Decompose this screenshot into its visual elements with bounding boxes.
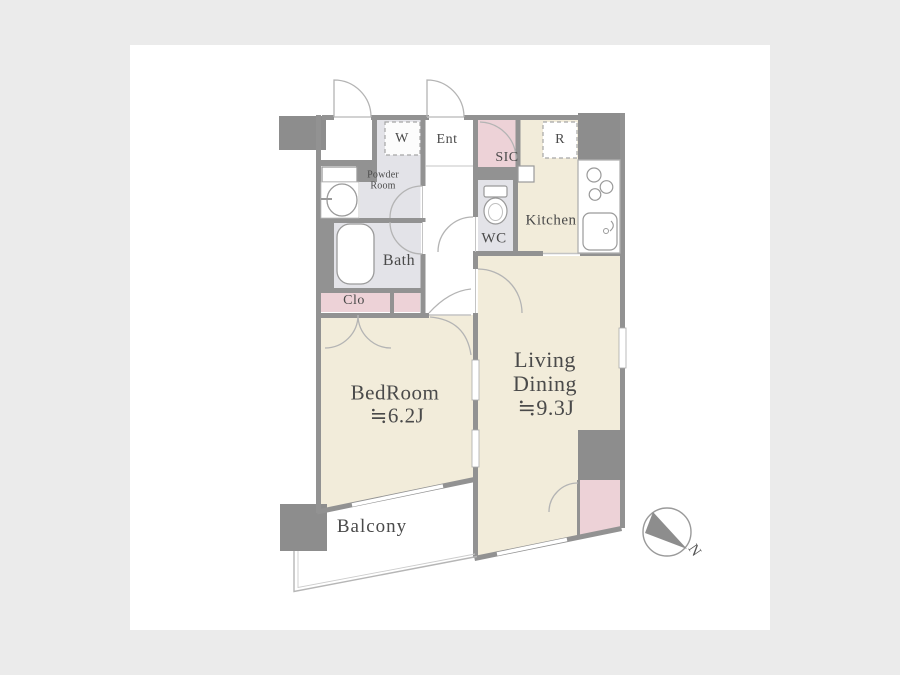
ld-side-window (619, 328, 626, 368)
compass (643, 508, 691, 556)
alcove-floor (321, 118, 372, 162)
niche-box (518, 166, 534, 182)
floorplan-drawing (0, 0, 900, 675)
closet2-floor (394, 290, 420, 312)
bathtub-icon (337, 224, 374, 284)
entrance-door-arc (427, 80, 464, 117)
sic-floor (473, 117, 518, 168)
toilet-tank-icon (484, 186, 507, 197)
pillar-top-right (578, 113, 625, 160)
closet-floor (321, 290, 390, 312)
kitchen-sink-icon (583, 213, 617, 250)
pillar-mid-right (578, 430, 625, 480)
alcove-door-arc (334, 80, 371, 117)
refrigerator-box (543, 122, 577, 158)
hallway-floor (425, 118, 473, 313)
floorplan-page: W Ent SIC R Powder Room Kitchen WC Bath … (0, 0, 900, 675)
shelf-box (322, 167, 357, 182)
washer-box (385, 122, 420, 155)
